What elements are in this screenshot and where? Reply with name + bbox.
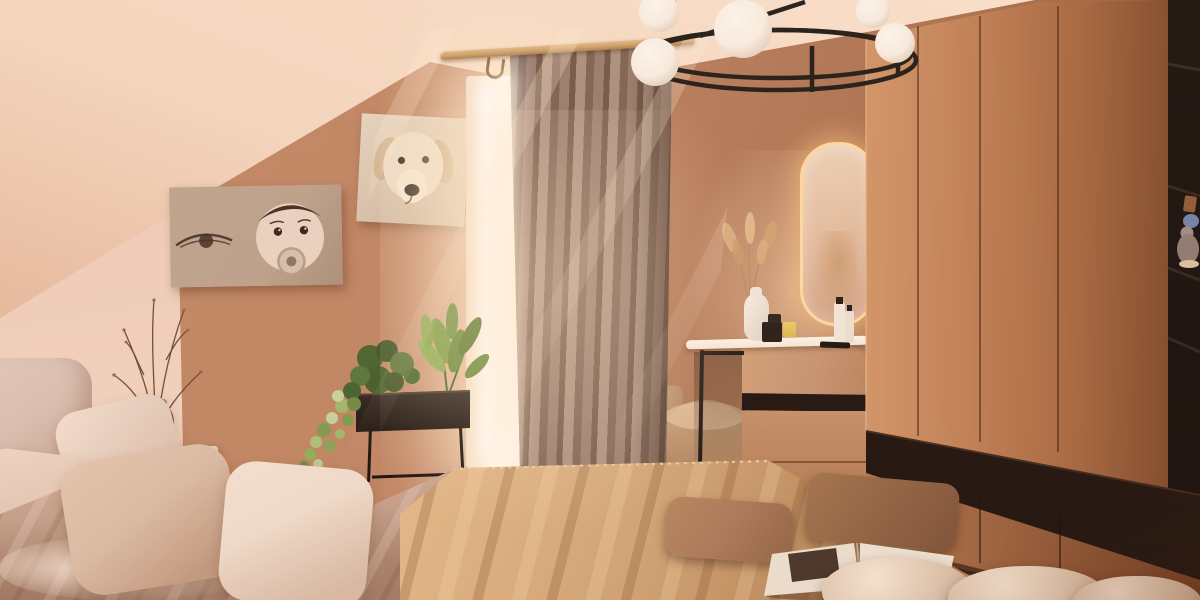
chandelier: [600, 0, 980, 132]
vanity-desk-apron: [742, 346, 866, 394]
perfume-bottle: [834, 302, 845, 342]
gold-jar: [783, 322, 796, 337]
black-tray: [820, 341, 850, 348]
vanity-desk-niche: [742, 393, 866, 412]
bedroom-scene: [0, 0, 1200, 600]
cosmetic-box-small: [768, 314, 781, 323]
bottle-cap: [836, 297, 843, 304]
pillow-blush: [56, 440, 245, 600]
baby-portrait-drawing: [169, 185, 343, 288]
cosmetic-box: [762, 322, 782, 342]
wall-art-baby: [169, 185, 343, 288]
